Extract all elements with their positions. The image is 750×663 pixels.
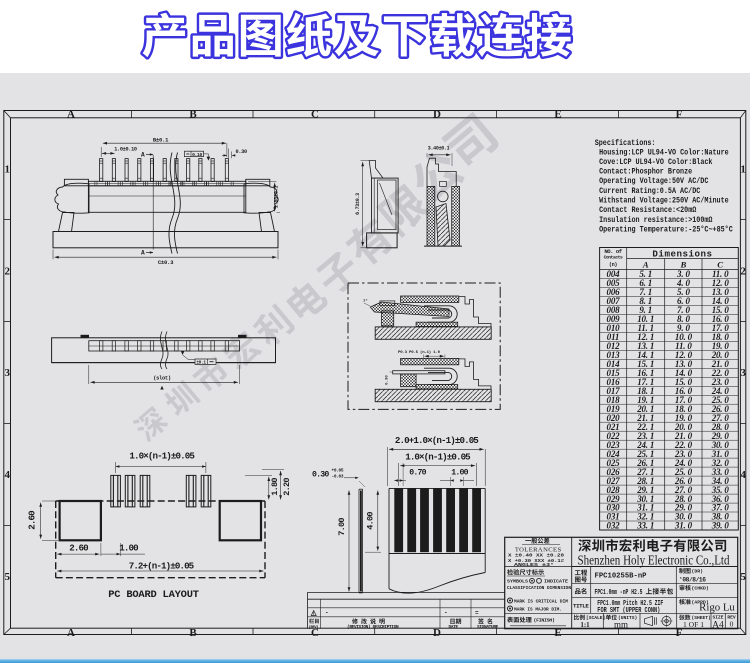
svg-text:3.40±0.1: 3.40±0.1 (428, 146, 450, 152)
svg-text:1:1: 1:1 (580, 621, 590, 629)
svg-text:A: A (141, 250, 145, 257)
svg-text:0.70: 0.70 (409, 468, 426, 477)
svg-text:NO. of: NO. of (604, 248, 622, 255)
svg-text:6.73±0.3: 6.73±0.3 (355, 193, 361, 215)
svg-text:Operating Temperature:-25°C~+8: Operating Temperature:-25°C~+85°C (599, 224, 733, 234)
svg-text:1.0×(n-1)±0.05: 1.0×(n-1)±0.05 (129, 451, 195, 462)
svg-text:2.60: 2.60 (69, 543, 88, 554)
svg-text:A: A (67, 109, 75, 121)
svg-text:Dimensions: Dimensions (652, 249, 712, 260)
svg-text:(CHKD): (CHKD) (692, 586, 709, 592)
svg-text:B±0.1: B±0.1 (153, 137, 169, 144)
svg-text:mm: mm (614, 619, 628, 629)
svg-text:1.0±0.10: 1.0±0.10 (114, 146, 137, 152)
svg-text:(REVISION) DESCRIPTION: (REVISION) DESCRIPTION (347, 625, 399, 630)
svg-text:0.30: 0.30 (386, 375, 390, 385)
svg-text:B: B (189, 627, 197, 639)
svg-text:2: 2 (740, 266, 746, 278)
svg-text:X ±0.40 XX ±0.20: X ±0.40 XX ±0.20 (508, 553, 564, 559)
svg-text:31. 0: 31. 0 (674, 521, 693, 531)
svg-text:5: 5 (740, 571, 746, 583)
svg-text:Rigo Lu: Rigo Lu (699, 602, 735, 614)
svg-text:0: 0 (730, 620, 734, 629)
svg-text:1.00: 1.00 (119, 543, 138, 554)
svg-text:Withstand Voltage:250V AC/Minu: Withstand Voltage:250V AC/Minute (599, 195, 729, 205)
svg-text:(n): (n) (609, 262, 617, 268)
svg-text:TITLE: TITLE (573, 603, 589, 610)
svg-text:7°: 7° (363, 299, 368, 304)
svg-text:4.00: 4.00 (366, 512, 376, 530)
svg-text:-0.03: -0.03 (332, 475, 344, 480)
svg-text:(slot): (slot) (153, 375, 171, 381)
svg-text:SYMBOLS: SYMBOLS (507, 579, 528, 585)
svg-text:1.85±0.1: 1.85±0.1 (274, 186, 280, 209)
svg-text:[REV]: [REV] (309, 625, 319, 630)
svg-text:33. 1: 33. 1 (636, 521, 654, 531)
svg-text:MARK IS MAJOR DIM.: MARK IS MAJOR DIM. (514, 607, 562, 613)
svg-text:0.10: 0.10 (192, 152, 202, 158)
svg-text:Housing:LCP UL94-VO Color:Natu: Housing:LCP UL94-VO Color:Nature (599, 148, 729, 158)
svg-text:FOR SMT (UPPER CONN): FOR SMT (UPPER CONN) (597, 607, 660, 615)
svg-text:ANGLES ±3°: ANGLES ±3° (514, 563, 554, 568)
svg-text:-: - (444, 610, 448, 617)
svg-text:3: 3 (740, 367, 746, 379)
svg-text:A: A (141, 152, 145, 159)
svg-text:1.00: 1.00 (451, 468, 468, 477)
svg-text:(FINISH): (FINISH) (534, 618, 555, 624)
svg-text:Operating Voltage:50V AC/DC: Operating Voltage:50V AC/DC (599, 176, 708, 186)
svg-text:2.60: 2.60 (27, 511, 38, 530)
svg-text:2.0+1.0×(n-1)±0.05: 2.0+1.0×(n-1)±0.05 (395, 435, 479, 446)
svg-text:0.30: 0.30 (236, 149, 247, 155)
svg-text:3: 3 (4, 367, 10, 379)
svg-text:SIGNATURE: SIGNATURE (477, 625, 499, 630)
svg-text:D: D (433, 109, 441, 121)
svg-text:1.0×(n-1)±0.05: 1.0×(n-1)±0.05 (405, 452, 471, 463)
svg-text:7.2+(n-1)±0.05: 7.2+(n-1)±0.05 (129, 561, 195, 572)
svg-text:!: ! (312, 612, 315, 617)
svg-text:032: 032 (607, 521, 621, 531)
svg-text:1: 1 (4, 164, 10, 176)
svg-text:0.30: 0.30 (312, 471, 329, 480)
svg-text:Contacts: Contacts (604, 255, 623, 261)
svg-text:1: 1 (740, 164, 746, 176)
svg-text:CLASSIFICATION DIMENSION: CLASSIFICATION DIMENSION (507, 585, 571, 591)
svg-text:2.20: 2.20 (282, 478, 292, 496)
svg-text:39. 0: 39. 0 (711, 521, 730, 531)
svg-text:C: C (311, 109, 319, 121)
svg-text:F: F (676, 109, 683, 121)
svg-text:(DR): (DR) (692, 569, 704, 575)
svg-text:DATE: DATE (449, 625, 459, 630)
svg-text:A: A (642, 259, 649, 269)
svg-text:A: A (67, 627, 75, 639)
svg-text:INDICATE: INDICATE (544, 579, 568, 585)
svg-text:MARK IS CRITICAL DIM: MARK IS CRITICAL DIM (514, 599, 568, 605)
svg-text:2: 2 (4, 266, 10, 278)
svg-text:E: E (554, 109, 561, 121)
svg-text:Contact Resistance:<20mΩ: Contact Resistance:<20mΩ (599, 205, 696, 215)
svg-text:A4: A4 (712, 620, 724, 631)
svg-text:±0.1: ±0.1 (196, 360, 206, 365)
svg-text:7.00: 7.00 (337, 518, 347, 536)
svg-text:B: B (189, 109, 197, 121)
svg-text:FPC10255B-nP: FPC10255B-nP (595, 573, 647, 581)
svg-text:=: = (475, 610, 479, 617)
svg-text:'08/8/16: '08/8/16 (679, 577, 706, 584)
svg-text:C: C (717, 259, 723, 269)
svg-text:-: - (325, 610, 329, 617)
svg-text:TOLERANCES: TOLERANCES (515, 547, 562, 554)
svg-text:Current Rating:0.5A AC/DC: Current Rating:0.5A AC/DC (599, 186, 700, 196)
svg-text:1.80: 1.80 (270, 478, 280, 496)
svg-text:FPC1.0mm -nP H2.5: FPC1.0mm -nP H2.5 (595, 589, 643, 597)
svg-text:B: B (679, 259, 686, 269)
svg-text:4: 4 (4, 469, 10, 481)
svg-text:4: 4 (740, 469, 746, 481)
svg-text:1 OF 1: 1 OF 1 (683, 620, 704, 629)
svg-text:+0.05: +0.05 (332, 469, 344, 474)
svg-text:P0.3 P0.5 (n-1) 1.0: P0.3 P0.5 (n-1) 1.0 (398, 350, 441, 355)
svg-text:C±0.3: C±0.3 (158, 259, 174, 266)
svg-text:5: 5 (4, 571, 10, 583)
svg-text:PC BOARD LAYOUT: PC BOARD LAYOUT (108, 589, 199, 601)
svg-text:Shenzhen Holy Electronic Co.,L: Shenzhen Holy Electronic Co.,Ltd (578, 552, 730, 567)
